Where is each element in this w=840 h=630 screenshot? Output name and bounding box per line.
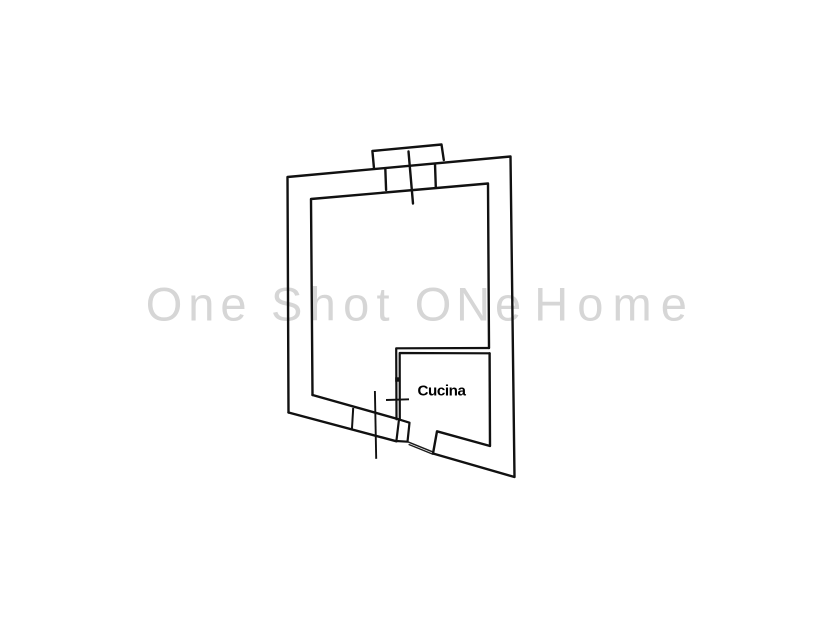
svg-text:Cucina: Cucina bbox=[418, 383, 467, 400]
svg-text:OneShotONeHome: OneShotONeHome bbox=[146, 278, 696, 331]
